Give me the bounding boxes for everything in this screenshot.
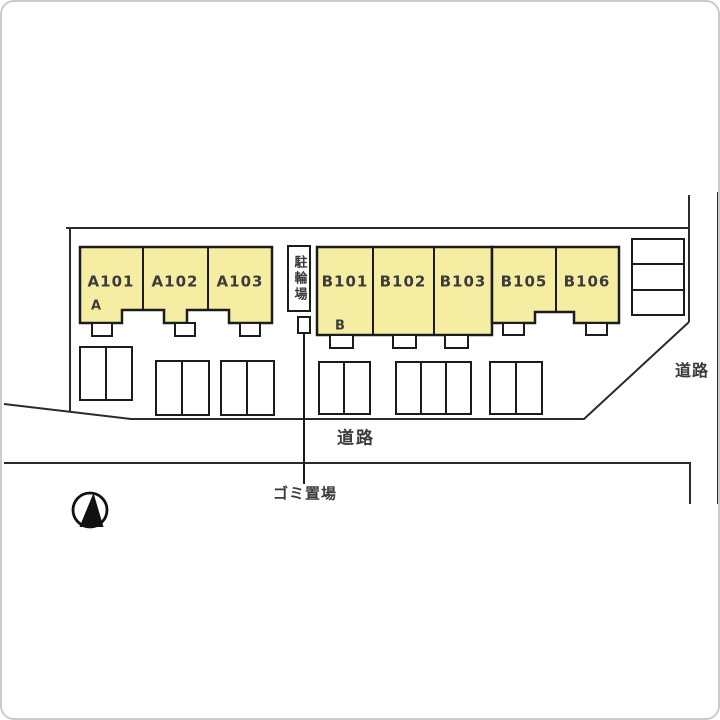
building-a-shape (80, 247, 272, 336)
unit-b103-label: B103 (440, 275, 487, 290)
site-plan-canvas: A101 A102 A103 B101 B102 B103 B105 B106 … (0, 0, 720, 720)
unit-a103-label: A103 (217, 275, 264, 290)
road-label-bottom: 道路 (337, 431, 375, 448)
unit-b101-label: B101 (322, 275, 369, 290)
unit-a101-label: A101 (88, 275, 135, 290)
site-plan-drawing (2, 2, 718, 718)
building-b-mark: B (335, 320, 345, 333)
road-bottom-edge-line (4, 463, 690, 504)
building-b-east-entrances (503, 323, 607, 335)
building-b-east-shape (492, 247, 619, 335)
building-a-mark: A (91, 300, 101, 313)
garbage-area-label: ゴミ置場 (273, 487, 337, 502)
unit-b102-label: B102 (380, 275, 427, 290)
north-arrow-icon (73, 493, 107, 527)
building-a-entrances (92, 323, 260, 336)
unit-b105-label: B105 (501, 275, 548, 290)
building-b-west-entrances (330, 335, 468, 348)
road-label-right: 道路 (675, 363, 709, 379)
unit-b106-label: B106 (564, 275, 611, 290)
unit-a102-label: A102 (152, 275, 199, 290)
bicycle-parking-label: 駐輪場 (293, 255, 306, 303)
garbage-spot-box (298, 317, 310, 333)
